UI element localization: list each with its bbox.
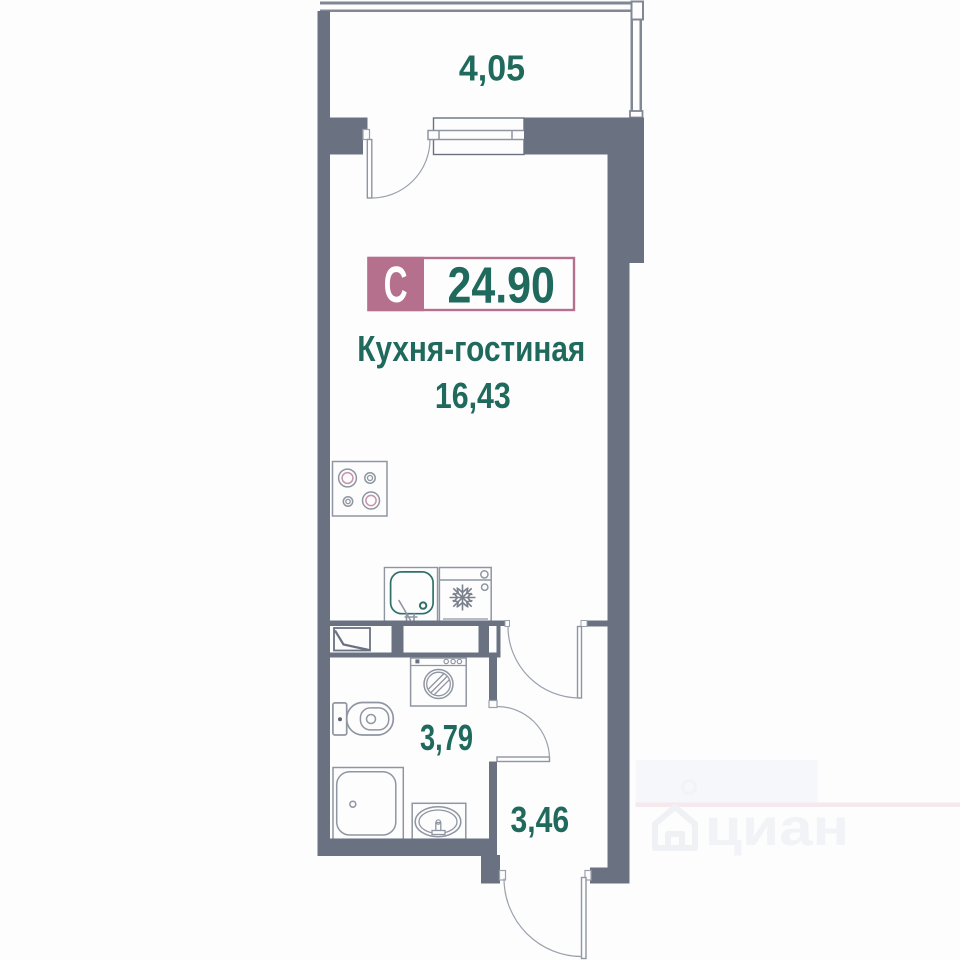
svg-text:циан: циан: [705, 799, 849, 857]
svg-text:3,46: 3,46: [511, 799, 570, 840]
svg-text:Кухня-гостиная: Кухня-гостиная: [357, 328, 585, 369]
svg-text:16,43: 16,43: [435, 375, 511, 416]
svg-text:24.90: 24.90: [447, 257, 555, 314]
svg-text:4,05: 4,05: [459, 48, 525, 89]
svg-text:3,79: 3,79: [420, 717, 473, 758]
svg-text:С: С: [384, 256, 408, 313]
